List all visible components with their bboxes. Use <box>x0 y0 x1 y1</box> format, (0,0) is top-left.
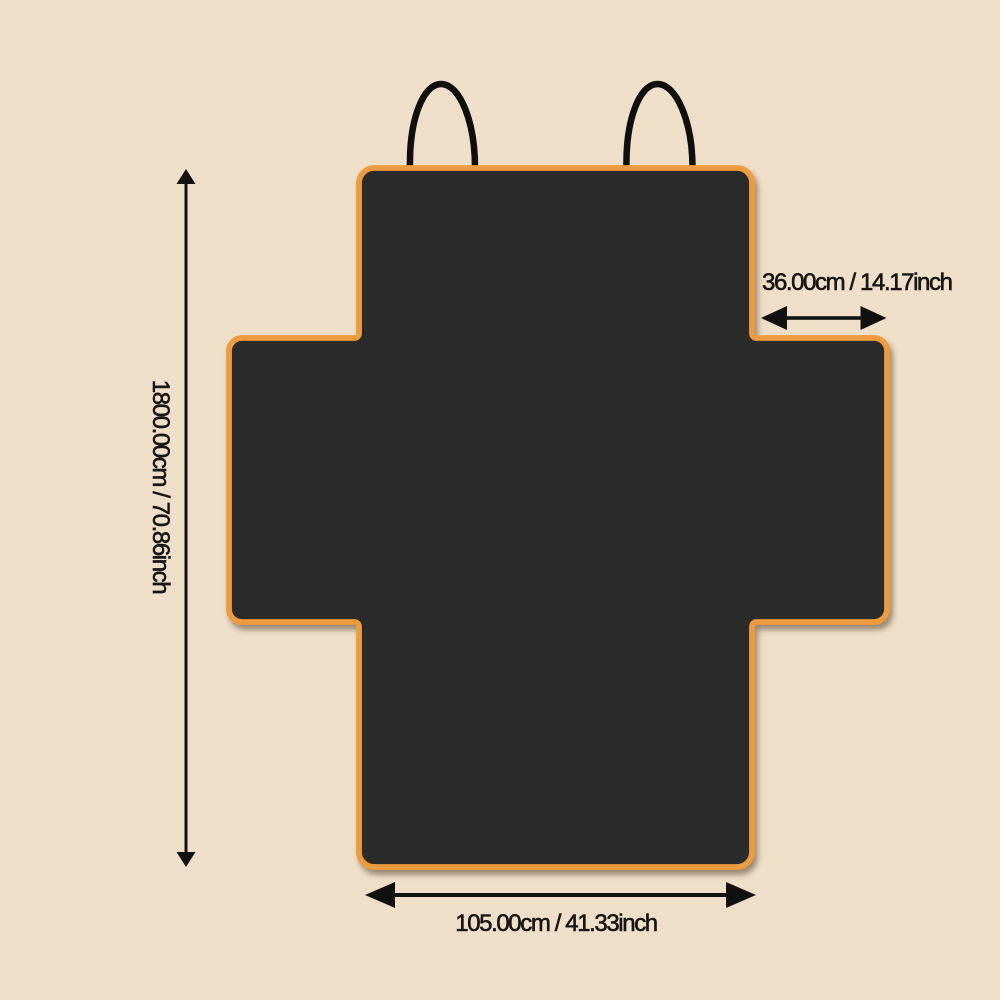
svg-text:105.00cm / 41.33inch: 105.00cm / 41.33inch <box>455 910 657 937</box>
svg-text:1800.00cm / 70.86inch: 1800.00cm / 70.86inch <box>147 380 174 593</box>
svg-text:36.00cm / 14.17inch: 36.00cm / 14.17inch <box>762 269 952 296</box>
